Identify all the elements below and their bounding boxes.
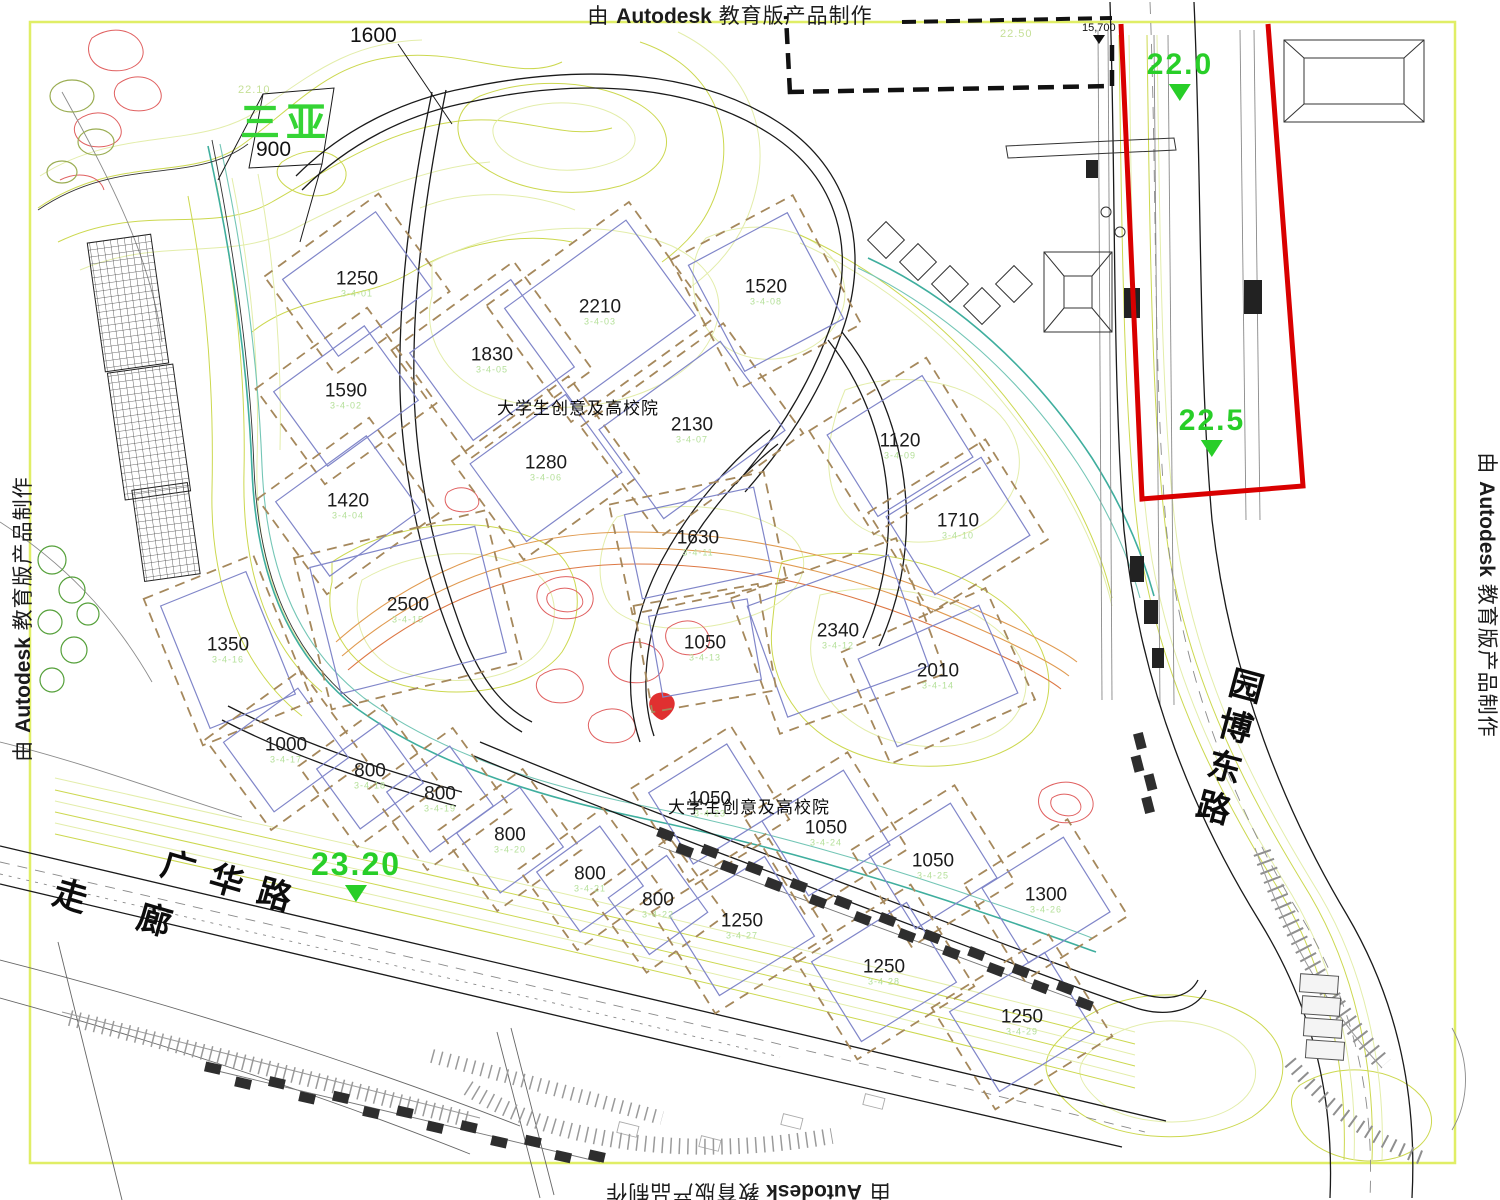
plot-code: 3-4-01 (336, 289, 378, 298)
building-block (701, 844, 720, 859)
building-block (720, 860, 739, 875)
plot-code: 3-4-23 (689, 809, 731, 818)
plot-label: 15203-4-08 (745, 277, 787, 306)
watermark-prefix: 由 (587, 5, 609, 28)
plot-number: 2210 (579, 297, 621, 317)
plot-code: 3-4-17 (265, 755, 307, 764)
plot-code: 3-4-19 (424, 804, 456, 813)
dimension-value: 15,700 (1082, 22, 1116, 34)
building-block (332, 1091, 350, 1104)
building-block (745, 861, 764, 876)
plot-number: 800 (494, 825, 526, 845)
plot-code: 3-4-13 (684, 653, 726, 662)
plot-number: 1830 (471, 345, 513, 365)
watermark-left: 由 Autodesk 教育版产品制作 (7, 449, 37, 789)
plot-number: 1300 (1025, 885, 1067, 905)
plot-number: 1050 (689, 789, 731, 809)
tree-symbols (38, 80, 114, 692)
plot-number: 1250 (336, 269, 378, 289)
plot-number: 1250 (863, 957, 905, 977)
building-block (1056, 980, 1075, 995)
building-block (942, 945, 961, 960)
building-block (967, 946, 986, 961)
plot-label: 12503-4-29 (1001, 1007, 1043, 1036)
plot-number: 1120 (880, 431, 921, 451)
plot-code: 3-4-03 (579, 317, 621, 326)
plot-label: 15903-4-02 (325, 381, 367, 410)
plot-number: 2340 (817, 621, 859, 641)
building-block (878, 912, 897, 927)
watermark-brand: Autodesk (616, 5, 712, 28)
plot-number: 1590 (325, 381, 367, 401)
plot-number: 800 (354, 761, 386, 781)
plot-code: 3-4-21 (574, 884, 606, 893)
elevation-marker: 23.20 (311, 846, 401, 902)
plot-number: 800 (574, 864, 606, 884)
plot-label: 8003-4-18 (354, 761, 386, 790)
building-block (1131, 755, 1145, 773)
plot-code: 3-4-05 (471, 365, 513, 374)
plot-code: 3-4-25 (912, 871, 954, 880)
plot-code: 3-4-28 (863, 977, 905, 986)
plot-label: 8003-4-20 (494, 825, 526, 854)
plot-label: 21303-4-07 (671, 415, 713, 444)
plot-code: 3-4-10 (937, 531, 979, 540)
building-block (1133, 732, 1147, 750)
plot-label: 20103-4-14 (917, 661, 959, 690)
plot-code: 3-4-29 (1001, 1027, 1043, 1036)
plot-number: 800 (424, 784, 456, 804)
plot-number: 1710 (937, 511, 979, 531)
plot-label: 10503-4-25 (912, 851, 954, 880)
building-block (362, 1106, 380, 1119)
plot-code: 3-4-04 (327, 511, 369, 520)
plot-label: 8003-4-21 (574, 864, 606, 893)
building-block (554, 1150, 572, 1163)
plot-label: 12803-4-06 (525, 453, 567, 482)
building-block (853, 911, 872, 926)
watermark-right: 由 Autodesk 教育版产品制作 (1473, 425, 1500, 765)
dimension-arrow-icon (1093, 35, 1105, 44)
dimension-marker: 15,700 (1082, 22, 1116, 44)
building-block (986, 962, 1005, 977)
building-block (809, 894, 828, 909)
building-block (764, 877, 783, 892)
elevation-value: 22.0 (1147, 48, 1213, 82)
plot-label: 8003-4-19 (424, 784, 456, 813)
plot-label: 12503-4-28 (863, 957, 905, 986)
elevation-arrow-icon (1169, 84, 1191, 101)
plot-label: 10503-4-13 (684, 633, 726, 662)
building-block (789, 878, 808, 893)
plot-label: 16303-4-11 (677, 528, 719, 557)
building-block (676, 843, 695, 858)
plot-number: 1050 (805, 818, 847, 838)
plot-number: 1280 (525, 453, 567, 473)
plot-label: 8003-4-22 (642, 890, 674, 919)
site-plan-drawing (0, 0, 1500, 1200)
building-block (298, 1091, 316, 1104)
building-block (834, 895, 853, 910)
plot-number: 1250 (721, 911, 763, 931)
building-block (588, 1149, 606, 1162)
plot-label: 13003-4-26 (1025, 885, 1067, 914)
building-block (460, 1120, 478, 1133)
plot-label: 10503-4-24 (805, 818, 847, 847)
road-lines (0, 2, 1413, 1198)
plot-number: 1050 (684, 633, 726, 653)
building-block (923, 929, 942, 944)
contour-elevation-label: 22.10 (238, 84, 271, 96)
building-block (1141, 796, 1155, 814)
plot-code: 3-4-06 (525, 473, 567, 482)
site-value-label: 900 (256, 138, 291, 162)
plot-label: 12503-4-01 (336, 269, 378, 298)
building-block (426, 1121, 444, 1134)
building-block (1075, 996, 1094, 1011)
plot-label: 11203-4-09 (880, 431, 921, 460)
plot-label: 17103-4-10 (937, 511, 979, 540)
plot-number: 2500 (387, 595, 429, 615)
plot-number: 1350 (207, 635, 249, 655)
district-label-1: 大学生创意及高校院 (497, 394, 659, 419)
plot-code: 3-4-26 (1025, 905, 1067, 914)
plot-label: 10003-4-17 (265, 735, 307, 764)
elevation-value: 23.20 (311, 846, 401, 883)
plot-number: 1630 (677, 528, 719, 548)
cad-site-plan: 由 Autodesk 教育版产品制作 由 Autodesk 教育版产品制作 由 … (0, 0, 1500, 1200)
plot-code: 3-4-14 (917, 681, 959, 690)
plot-label: 14203-4-04 (327, 491, 369, 520)
building-block (1031, 979, 1050, 994)
building-block (898, 928, 917, 943)
plot-label: 22103-4-03 (579, 297, 621, 326)
plot-number: 2130 (671, 415, 713, 435)
plot-label: 23403-4-12 (817, 621, 859, 650)
plot-code: 3-4-08 (745, 297, 787, 306)
contour-elevation-label: 22.50 (1000, 28, 1033, 40)
plot-code: 3-4-27 (721, 931, 763, 940)
plot-code: 3-4-02 (325, 401, 367, 410)
plot-label: 25003-4-15 (387, 595, 429, 624)
plot-label: 12503-4-27 (721, 911, 763, 940)
plot-code: 3-4-20 (494, 845, 526, 854)
watermark-top: 由 Autodesk 教育版产品制作 (587, 0, 872, 30)
plot-label: 13503-4-16 (207, 635, 249, 664)
building-block (490, 1135, 508, 1148)
elevation-marker: 22.0 (1147, 48, 1213, 101)
plot-label: 10503-4-23 (689, 789, 731, 818)
building-block (396, 1105, 414, 1118)
plot-number: 1420 (327, 491, 369, 511)
elevation-marker: 22.5 (1179, 404, 1245, 457)
rock-contours (60, 30, 1093, 823)
plot-code: 3-4-09 (880, 451, 921, 460)
plot-code: 3-4-11 (677, 548, 719, 557)
plot-number: 1000 (265, 735, 307, 755)
plot-number: 1250 (1001, 1007, 1043, 1027)
plot-code: 3-4-18 (354, 781, 386, 790)
plot-code: 3-4-15 (387, 615, 429, 624)
plot-code: 3-4-12 (817, 641, 859, 650)
elevation-arrow-icon (345, 885, 367, 902)
plot-code: 3-4-22 (642, 910, 674, 919)
plot-1600-label: 1600 (350, 24, 397, 48)
plot-number: 1520 (745, 277, 787, 297)
plot-number: 2010 (917, 661, 959, 681)
watermark-bottom: 由 Autodesk 教育版产品制作 (605, 1178, 890, 1200)
plot-number: 1050 (912, 851, 954, 871)
watermark-suffix: 教育版产品制作 (719, 5, 873, 28)
plot-code: 3-4-07 (671, 435, 713, 444)
plot-code: 3-4-24 (805, 838, 847, 847)
plot-number: 800 (642, 890, 674, 910)
plot-code: 3-4-16 (207, 655, 249, 664)
building-block (1144, 773, 1158, 791)
plot-label: 18303-4-05 (471, 345, 513, 374)
elevation-value: 22.5 (1179, 404, 1245, 438)
building-block (1012, 963, 1031, 978)
elevation-arrow-icon (1201, 440, 1223, 457)
